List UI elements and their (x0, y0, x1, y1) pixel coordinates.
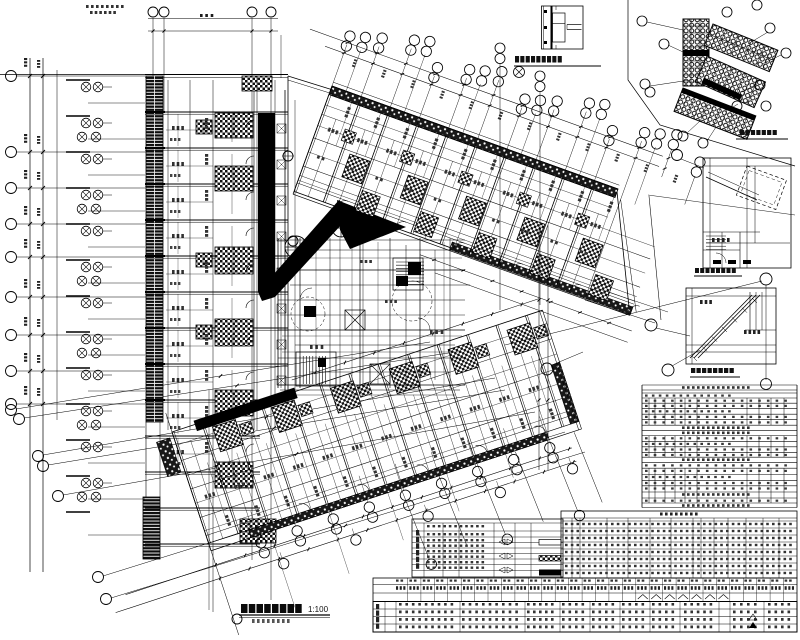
svg-text:1:100: 1:100 (308, 605, 329, 614)
